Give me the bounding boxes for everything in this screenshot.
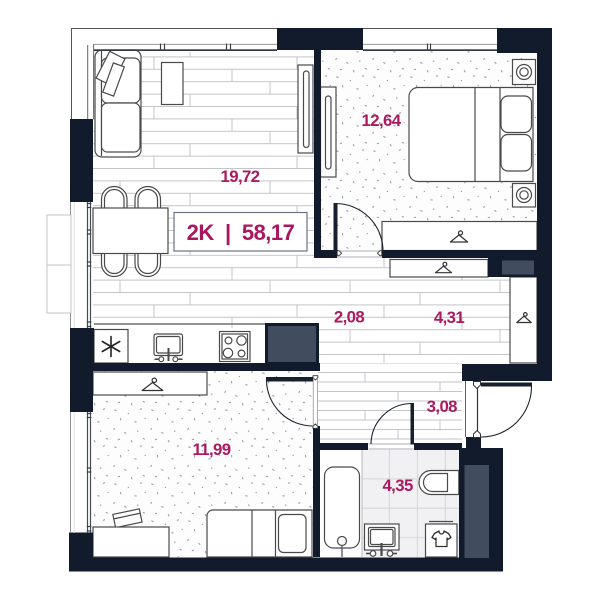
svg-text:12,64: 12,64 <box>362 111 402 130</box>
svg-text:4,35: 4,35 <box>382 476 413 495</box>
svg-text:2K | 58,17: 2K | 58,17 <box>187 220 295 245</box>
svg-text:4,31: 4,31 <box>434 308 465 327</box>
svg-text:11,99: 11,99 <box>192 440 230 459</box>
svg-text:19,72: 19,72 <box>221 167 260 186</box>
svg-text:3,08: 3,08 <box>427 397 458 416</box>
svg-text:2,08: 2,08 <box>334 308 365 327</box>
